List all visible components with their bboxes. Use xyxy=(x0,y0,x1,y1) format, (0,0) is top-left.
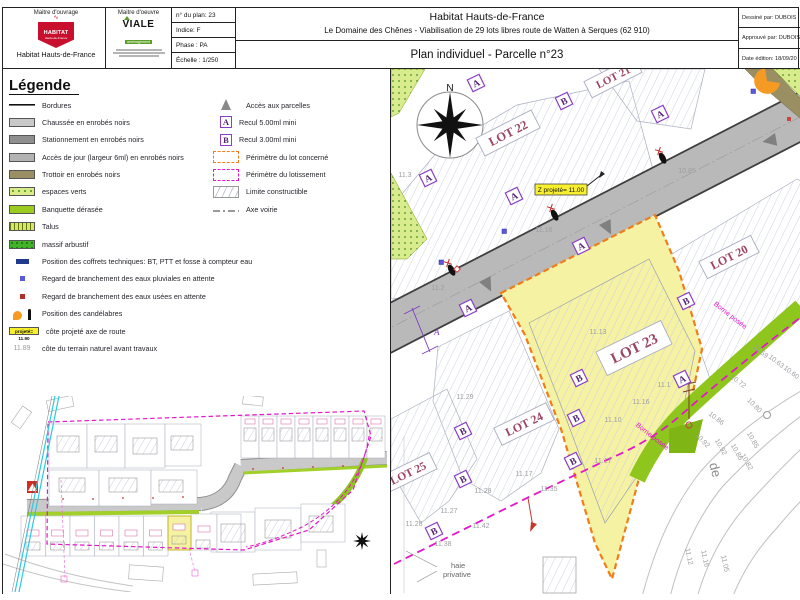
espaces-swatch xyxy=(9,187,35,196)
regard-pluvial-icon xyxy=(502,229,507,234)
maitre-oeuvre-label: Maitre d'oeuvre xyxy=(106,10,171,16)
cote-label: 10.60 xyxy=(782,365,800,381)
cote-label: 11.27 xyxy=(441,508,458,515)
svg-text:privative: privative xyxy=(443,570,471,579)
cote-label: 10.72 xyxy=(729,374,747,390)
legend-label: Bordures xyxy=(42,101,71,110)
regard-pluvial-icon xyxy=(439,260,444,265)
legend-item-coffrets: Position des coffrets techniques: BT, PT… xyxy=(9,257,252,267)
cote-label: 11.3 xyxy=(398,172,411,179)
green-verge-left xyxy=(391,69,427,259)
habitat-logo-subtext: Hauts-de-France xyxy=(45,36,68,40)
legend-item-talus: Talus xyxy=(9,222,252,232)
legend-label: Périmètre du lot concerné xyxy=(246,153,328,162)
cote-label: 11.10 xyxy=(605,417,622,424)
cote_proj-swatch: projeté= 11.90 xyxy=(9,327,39,335)
overview-map xyxy=(3,396,387,592)
plan-sheet: Maitre d'ouvrage ∿ HABITAT Hauts-de-Fran… xyxy=(0,0,800,600)
chaussee-swatch xyxy=(9,118,35,127)
viale-accent-icon xyxy=(124,16,130,20)
legend-label: Position des candélabres xyxy=(42,309,122,318)
cote-label: 10.82 xyxy=(739,453,754,472)
talus-swatch xyxy=(9,222,35,231)
legend-item-recul_a: ARecul 5.00ml mini xyxy=(213,117,328,127)
recul-marker-b: B xyxy=(425,522,442,539)
legend-label: Recul 3.00ml mini xyxy=(239,135,296,144)
legend-label: Stationnement en enrobés noirs xyxy=(42,135,144,144)
legend-item-perim_lot: Périmètre du lot concerné xyxy=(213,152,328,162)
legend-label: Talus xyxy=(42,222,59,231)
usees-swatch xyxy=(9,292,35,301)
acces-swatch xyxy=(9,153,35,162)
maitre-ouvrage-box: Maitre d'ouvrage ∿ HABITAT Hauts-de-Fran… xyxy=(7,8,106,69)
legend-item-cote_proj: projeté= 11.90côte projeté axe de route xyxy=(9,326,252,336)
cote-label: 11.35 xyxy=(541,486,558,493)
cote-label: 10.85 xyxy=(745,431,760,450)
legend-label: Banquette dérasée xyxy=(42,205,103,214)
cote-label: 11.1 xyxy=(657,382,670,389)
habitat-logo: HABITAT Hauts-de-France xyxy=(38,22,74,48)
overview-lot23-highlight xyxy=(168,516,191,550)
legend-label: Axe voirie xyxy=(246,205,278,214)
project-org: Habitat Hauts-de-France xyxy=(236,11,738,23)
svg-text:haie: haie xyxy=(451,561,465,570)
overview-north-star xyxy=(349,528,374,553)
pluvial-swatch xyxy=(9,274,35,283)
drawn-by: Dessiné par: DUBOIS xyxy=(739,8,800,28)
legend-item-usees: Regard de branchement des eaux usées en … xyxy=(9,291,252,301)
legend-panel: Légende BorduresChaussée en enrobés noir… xyxy=(3,69,391,594)
viale-logo-subtext: aménagement xyxy=(125,40,152,44)
legend-label: Trottoir en enrobés noirs xyxy=(42,170,120,179)
cote-label: 11.05 xyxy=(719,555,729,573)
legend-item-axe: Axe voirie xyxy=(213,204,328,214)
plan-echelle: Échelle : 1/250 xyxy=(172,53,235,68)
cote-label: 11.42 xyxy=(473,523,490,530)
legend-item-cote_nat: 11.89côte du terrain naturel avant trava… xyxy=(9,343,252,353)
legend-label: Position des coffrets techniques: BT, PT… xyxy=(42,257,252,266)
approved-by: Approuvé par: DUBOIS xyxy=(739,28,800,48)
perim_lot-swatch xyxy=(213,151,239,163)
project-description: Le Domaine des Chênes - Viabilisation de… xyxy=(236,26,738,35)
legend-item-candelabre: Position des candélabres xyxy=(9,309,252,319)
legend-item-perim_lotissement: Périmètre du lotissement xyxy=(213,170,328,180)
recul-marker-a: A xyxy=(467,74,484,91)
sheet-title: Plan individuel - Parcelle n°23 xyxy=(236,41,738,69)
street-name-label: de xyxy=(706,461,724,479)
cote_nat-swatch: 11.89 xyxy=(9,344,35,353)
address-line xyxy=(113,52,165,54)
cote-label: 11.13 xyxy=(590,329,607,336)
legend-label: espaces verts xyxy=(42,187,86,196)
recul_b-swatch: B xyxy=(220,134,232,146)
parcel-plan-drawing: Z projeté= 11.00 A haie privative de Bor… xyxy=(391,69,800,594)
plan-indice: Indice: F xyxy=(172,23,235,38)
viale-logo: VIALE xyxy=(106,19,171,30)
cote-label: 11.16 xyxy=(536,227,553,234)
cote-label: 11.2 xyxy=(431,285,444,292)
cote-label: 10.85 xyxy=(678,168,696,175)
legend-label: Accès de jour (largeur 6ml) en enrobés n… xyxy=(42,153,184,162)
candelabre-swatch xyxy=(9,308,35,320)
signature-box: Dessiné par: DUBOIS Approuvé par: DUBOIS… xyxy=(739,8,800,69)
cote-label: 11.16 xyxy=(699,550,709,568)
cote-label: 11.17 xyxy=(516,471,533,478)
massif-swatch xyxy=(9,240,35,249)
plan-phase: Phase : PA xyxy=(172,38,235,53)
legend-col-right: Accès aux parcellesARecul 5.00ml miniBRe… xyxy=(213,100,328,222)
perim_lotissement-swatch xyxy=(213,169,239,181)
haie-privative-label: haie privative xyxy=(406,551,471,582)
legend-item-limite: Limite constructible xyxy=(213,187,328,197)
legend-item-pluvial: Regard de branchement des eaux pluviales… xyxy=(9,274,252,284)
cote-label: 11.16 xyxy=(633,399,650,406)
axe-swatch xyxy=(213,210,239,212)
cote-label: 11.17 xyxy=(595,458,612,465)
project-title-box: Habitat Hauts-de-France Le Domaine des C… xyxy=(236,8,739,69)
maitre-oeuvre-box: Maitre d'oeuvre VIALE aménagement xyxy=(106,8,172,69)
banquette-swatch xyxy=(9,205,35,214)
legend-label: Regard de branchement des eaux pluviales… xyxy=(42,274,215,283)
bird-icon: ∿ xyxy=(7,16,105,20)
plan-number: n° du plan: 23 xyxy=(172,8,235,23)
plan-info-box: n° du plan: 23 Indice: F Phase : PA Éche… xyxy=(172,8,236,69)
svg-text:A: A xyxy=(433,327,440,337)
regard-pluvial-icon xyxy=(751,89,756,94)
legend-label: massif arbustif xyxy=(42,240,88,249)
cote-label: 11.28 xyxy=(406,521,423,528)
legend-label: Recul 5.00ml mini xyxy=(239,118,296,127)
cote-label: 11.28 xyxy=(475,488,492,495)
legend-label: Chaussée en enrobés noirs xyxy=(42,118,130,127)
legend-label: côte du terrain naturel avant travaux xyxy=(42,344,157,353)
cote-label: 10.86 xyxy=(707,411,725,427)
title-block: Maitre d'ouvrage ∿ HABITAT Hauts-de-Fran… xyxy=(3,8,800,69)
svg-text:Z projeté= 11.00: Z projeté= 11.00 xyxy=(538,187,585,194)
date-edition: Date édition: 18/09/20 xyxy=(739,49,800,69)
maitre-ouvrage-name: Habitat Hauts-de-France xyxy=(7,50,105,59)
hatched-block xyxy=(543,557,576,593)
address-line xyxy=(116,49,162,51)
cote-label: 10.92 xyxy=(713,438,728,457)
red-arrow xyxy=(528,498,537,532)
legend-title: Légende xyxy=(9,77,79,95)
cote-label: 10.80 xyxy=(745,397,762,414)
cote-label: 11.38 xyxy=(435,541,452,548)
legend-item-recul_b: BRecul 3.00ml mini xyxy=(213,135,328,145)
recul_a-swatch: A xyxy=(220,116,232,128)
regard-usees-icon xyxy=(787,117,791,121)
north-label: N xyxy=(446,83,453,94)
legend-label: côte projeté axe de route xyxy=(46,327,126,336)
legend-item-triangle: Accès aux parcelles xyxy=(213,100,328,110)
coffrets-swatch xyxy=(9,257,35,266)
main-plan-panel: Z projeté= 11.00 A haie privative de Bor… xyxy=(391,69,800,594)
legend-label: Regard de branchement des eaux usées en … xyxy=(42,292,206,301)
stationnement-swatch xyxy=(9,135,35,144)
address-line xyxy=(119,55,159,57)
triangle-swatch xyxy=(213,99,239,111)
cote-label: 10.63 xyxy=(767,354,785,370)
legend-label: Limite constructible xyxy=(246,187,308,196)
compass-rose: N xyxy=(417,83,483,158)
limite-swatch xyxy=(213,186,239,198)
legend-item-massif: massif arbustif xyxy=(9,239,252,249)
cote-label: 11.12 xyxy=(683,548,693,566)
bordure-swatch xyxy=(9,101,35,110)
legend-label: Périmètre du lotissement xyxy=(246,170,326,179)
trottoir-swatch xyxy=(9,170,35,179)
cote-label: 11.29 xyxy=(457,394,474,401)
sheet-frame: Maitre d'ouvrage ∿ HABITAT Hauts-de-Fran… xyxy=(2,7,799,594)
legend-label: Accès aux parcelles xyxy=(246,101,310,110)
